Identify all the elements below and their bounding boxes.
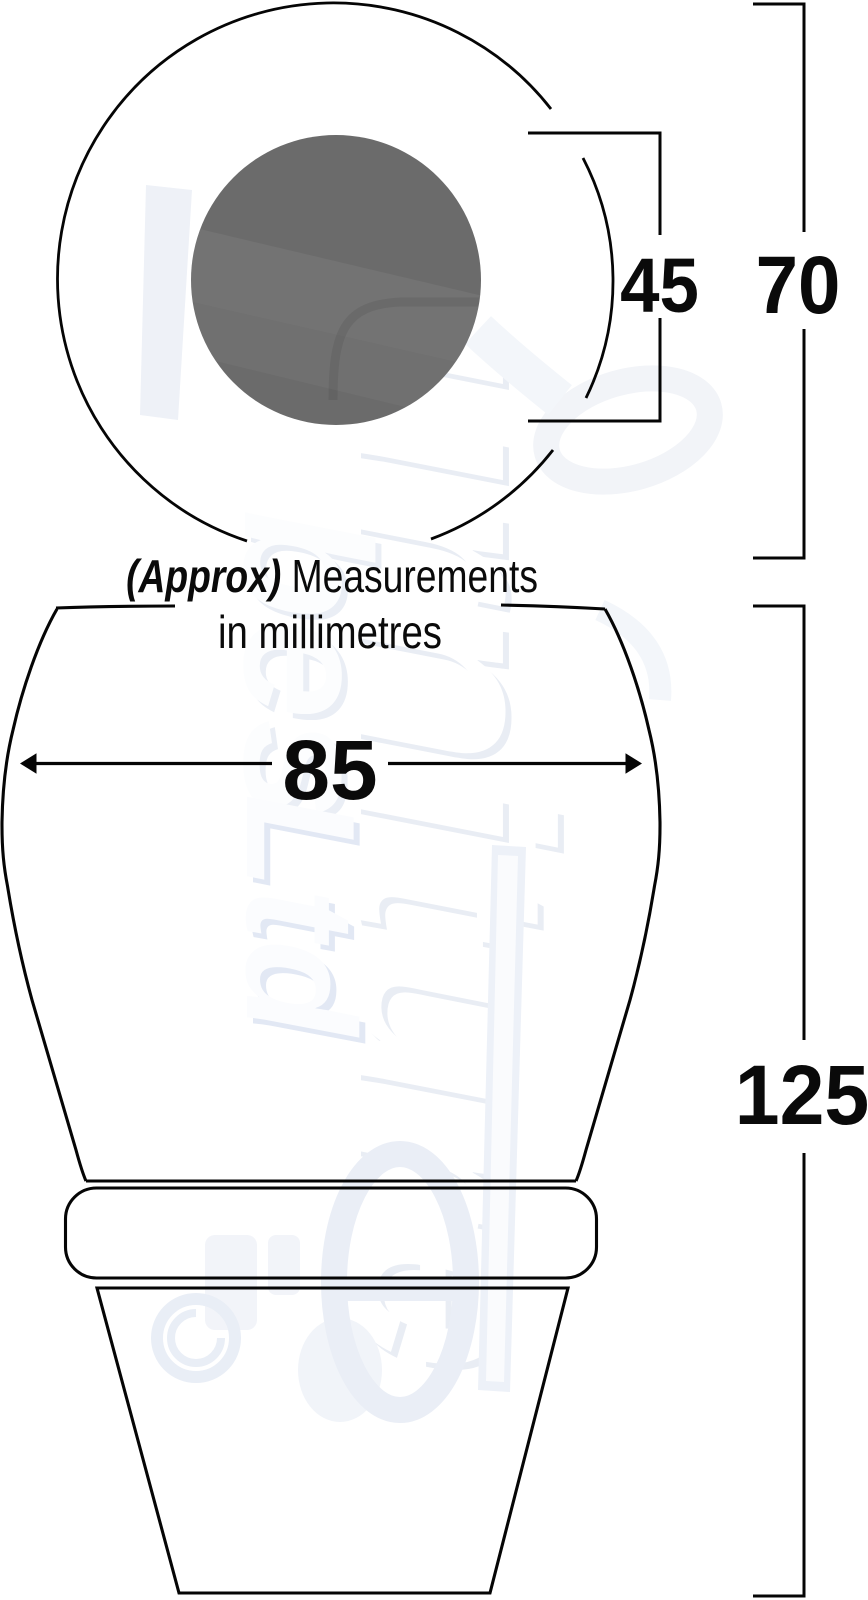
svg-text:in millimetres: in millimetres <box>218 607 442 658</box>
svg-text:Ltd: Ltd <box>214 794 387 1038</box>
svg-text:45: 45 <box>620 242 699 328</box>
svg-text:70: 70 <box>756 238 841 330</box>
svg-text:85: 85 <box>282 723 377 817</box>
svg-text:(Approx) Measurements: (Approx) Measurements <box>126 550 538 602</box>
svg-text:125: 125 <box>735 1049 868 1143</box>
